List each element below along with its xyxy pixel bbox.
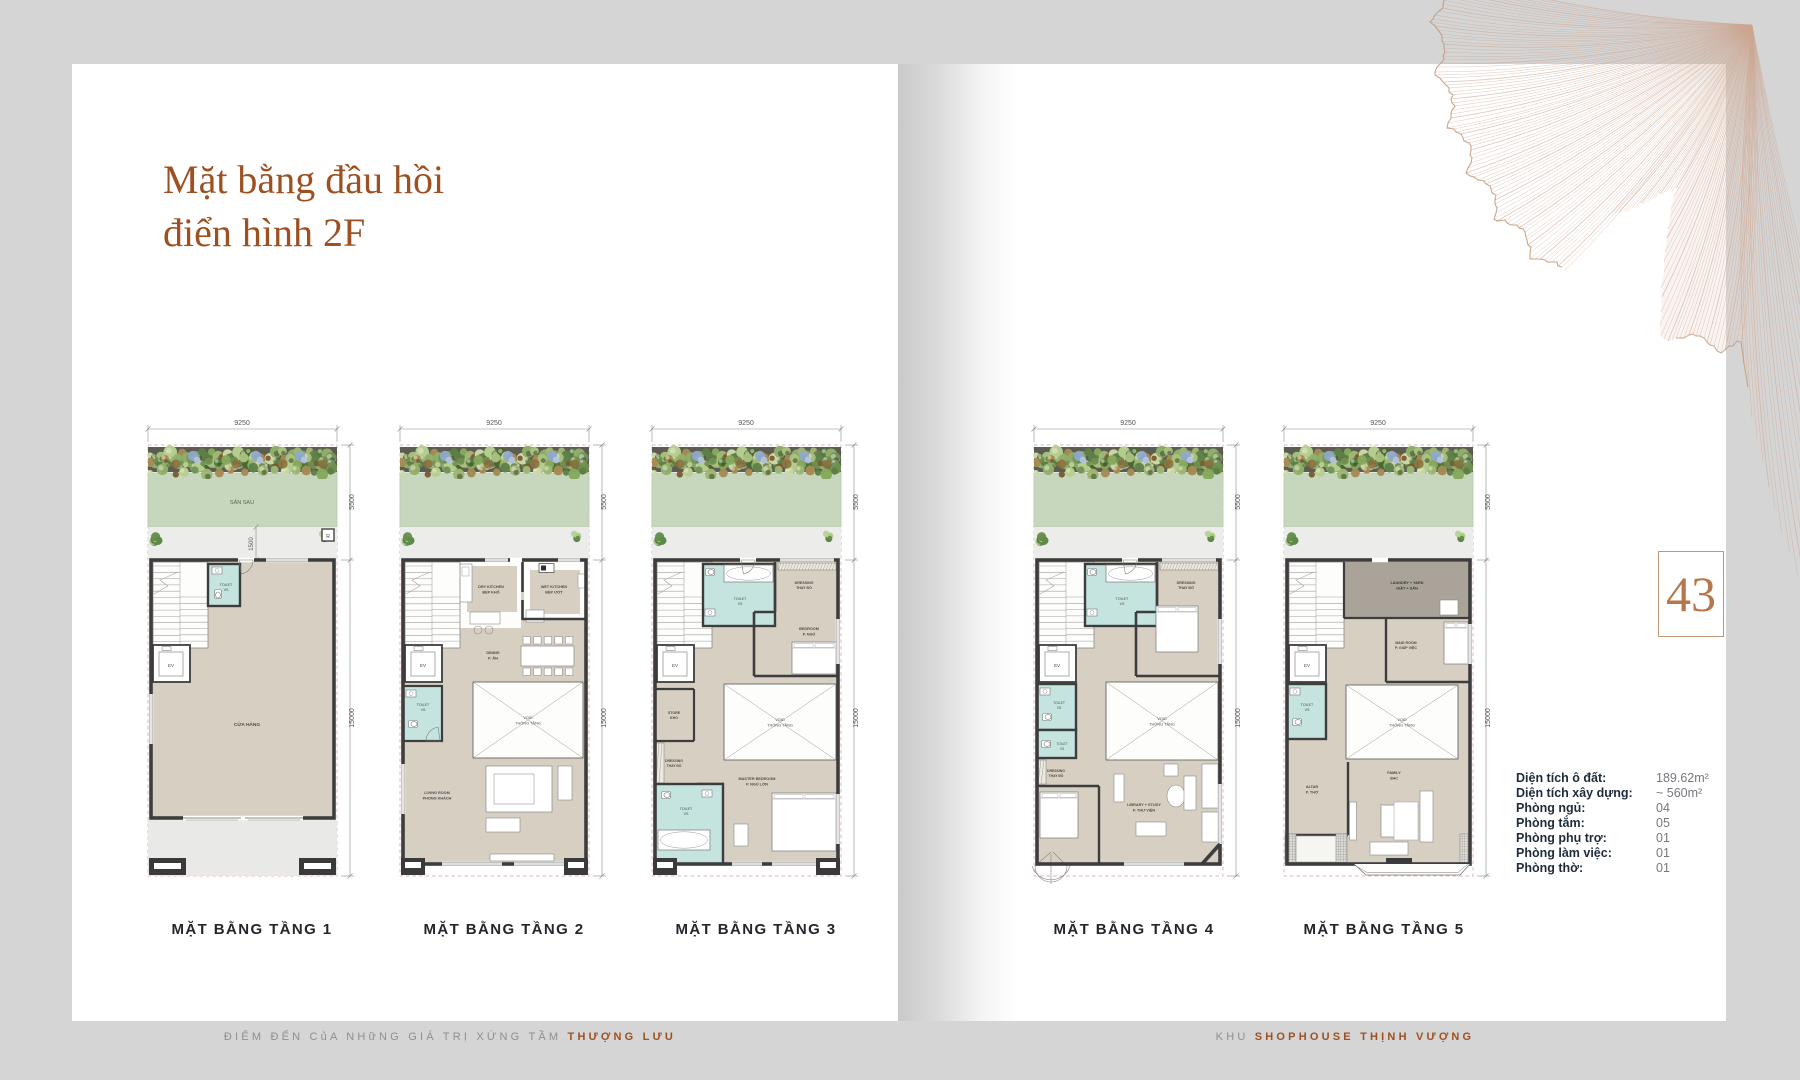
svg-text:9250: 9250 — [738, 420, 754, 427]
svg-text:5500: 5500 — [1235, 494, 1242, 510]
svg-text:5500: 5500 — [853, 494, 860, 510]
svg-text:9250: 9250 — [486, 420, 502, 427]
svg-text:EV: EV — [168, 663, 174, 668]
svg-text:9250: 9250 — [1370, 420, 1386, 427]
svg-text:15000: 15000 — [1485, 708, 1492, 728]
svg-text:15000: 15000 — [601, 708, 608, 728]
svg-text:5500: 5500 — [601, 494, 608, 510]
svg-text:9250: 9250 — [234, 420, 250, 427]
svg-text:1500: 1500 — [249, 537, 255, 551]
svg-text:DRESSINGTHAY ĐỒ: DRESSINGTHAY ĐỒ — [1047, 769, 1065, 778]
svg-text:5500: 5500 — [349, 494, 356, 510]
svg-text:DRESSINGTHAY ĐỒ: DRESSINGTHAY ĐỒ — [795, 581, 814, 590]
svg-text:EV: EV — [1054, 663, 1060, 668]
svg-text:DRESSINGTHAY ĐỒ: DRESSINGTHAY ĐỒ — [1177, 581, 1196, 590]
svg-text:LIVING ROOMPHONG KHÁCH: LIVING ROOMPHONG KHÁCH — [423, 791, 452, 800]
svg-text:DININGP. ĂN: DININGP. ĂN — [486, 651, 499, 660]
svg-text:15000: 15000 — [349, 708, 356, 728]
svg-text:EV: EV — [1304, 663, 1310, 668]
svg-text:EV: EV — [672, 663, 678, 668]
svg-text:15000: 15000 — [853, 708, 860, 728]
svg-text:MAID ROOMP. GIÚP VIỆC: MAID ROOMP. GIÚP VIỆC — [1395, 641, 1417, 650]
svg-text:EV: EV — [420, 663, 426, 668]
svg-text:R: R — [326, 534, 330, 540]
svg-text:5500: 5500 — [1485, 494, 1492, 510]
svg-text:9250: 9250 — [1120, 420, 1136, 427]
svg-text:SÂN SAU: SÂN SAU — [230, 499, 254, 506]
svg-text:CỬA HÀNG: CỬA HÀNG — [234, 721, 260, 728]
svg-text:15000: 15000 — [1235, 708, 1242, 728]
svg-text:DRESSINGTHAY ĐỒ: DRESSINGTHAY ĐỒ — [665, 759, 683, 768]
svg-text:ALTARP. THỜ: ALTARP. THỜ — [1306, 785, 1319, 794]
